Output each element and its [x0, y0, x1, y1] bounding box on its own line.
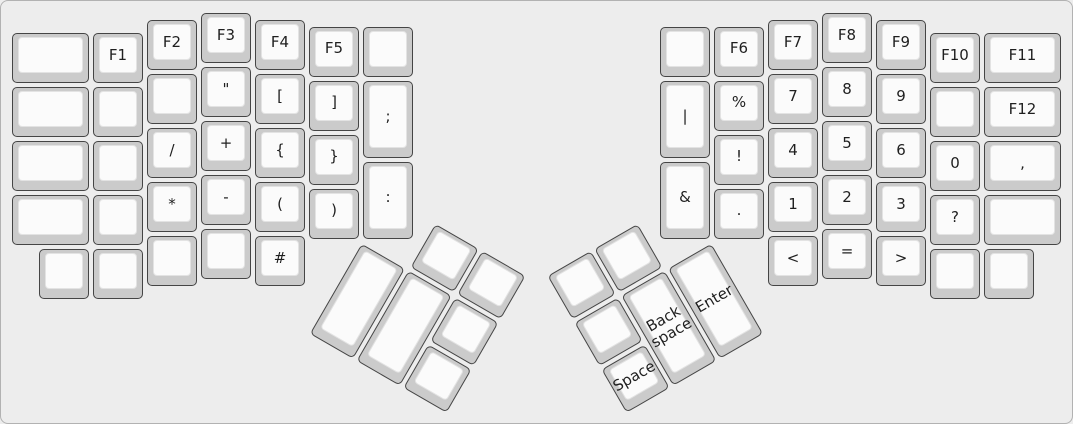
key-blank[interactable]	[930, 249, 980, 299]
key-label: (	[276, 196, 284, 213]
key-label: %	[731, 94, 747, 111]
key-label: #	[273, 250, 288, 267]
key-blank[interactable]	[984, 249, 1034, 299]
key-label: |	[681, 108, 688, 125]
key-label	[579, 282, 581, 283]
key-label: F12	[1008, 101, 1038, 118]
key-label: F2	[162, 34, 182, 51]
keytop-surface: 9	[882, 78, 920, 114]
key--[interactable]: -	[201, 175, 251, 225]
key-0[interactable]: 0	[930, 141, 980, 191]
key-label: [	[276, 88, 284, 105]
keytop-surface	[45, 253, 83, 289]
key-label: /	[168, 142, 175, 159]
key-label	[492, 282, 494, 283]
key-blank[interactable]	[93, 195, 143, 245]
key-;[interactable]: ;	[363, 81, 413, 158]
key-label: F10	[940, 47, 970, 64]
keytop-surface: ,	[990, 145, 1055, 181]
keytop-surface: :	[369, 166, 407, 229]
key-label: F4	[270, 34, 290, 51]
key-label: +	[219, 135, 234, 152]
key-+[interactable]: +	[201, 121, 251, 171]
keytop-surface: +	[207, 125, 245, 161]
key-label: F9	[891, 34, 911, 51]
keytop-surface: -	[207, 179, 245, 215]
keytop-surface: 5	[828, 125, 866, 161]
key-blank[interactable]	[984, 195, 1061, 245]
keytop-surface	[207, 233, 245, 269]
keytop-surface: }	[315, 139, 353, 175]
keytop-surface: |	[666, 85, 704, 148]
key-f1[interactable]: F1	[93, 33, 143, 83]
key-f12[interactable]: F12	[984, 87, 1061, 137]
key-label: :	[384, 189, 391, 206]
key-blank[interactable]	[39, 249, 89, 299]
keytop-surface	[99, 253, 137, 289]
keytop-surface: 3	[882, 186, 920, 222]
key-label: Space	[609, 356, 659, 394]
keytop-surface: F3	[207, 17, 245, 53]
key-label: 4	[787, 142, 799, 159]
keytop-surface	[990, 253, 1028, 289]
key-label: 2	[841, 189, 853, 206]
keytop-surface: [	[261, 78, 299, 114]
key-label: 1	[787, 196, 799, 213]
key-6[interactable]: 6	[876, 128, 926, 178]
key-label: *	[167, 196, 177, 213]
keytop-surface	[99, 91, 137, 127]
key-8[interactable]: 8	[822, 67, 872, 117]
key-f4[interactable]: F4	[255, 20, 305, 70]
key-}[interactable]: }	[309, 135, 359, 185]
key-label: ]	[330, 94, 338, 111]
key-label: <	[786, 250, 801, 267]
key-|[interactable]: |	[660, 81, 710, 158]
key-blank[interactable]	[12, 33, 89, 83]
keytop-surface: F10	[936, 37, 974, 73]
keytop-surface: {	[261, 132, 299, 168]
key-4[interactable]: 4	[768, 128, 818, 178]
key-label: 8	[841, 81, 853, 98]
key-f11[interactable]: F11	[984, 33, 1061, 83]
keytop-surface: >	[882, 240, 920, 276]
key-label	[438, 375, 440, 376]
key-label: !	[735, 148, 743, 165]
keytop-surface: F7	[774, 24, 812, 60]
key-blank[interactable]	[147, 74, 197, 124]
keytop-surface: 6	[882, 132, 920, 168]
key-blank[interactable]	[93, 249, 143, 299]
key-?[interactable]: ?	[930, 195, 980, 245]
key-f2[interactable]: F2	[147, 20, 197, 70]
keytop-surface	[153, 78, 191, 114]
keytop-surface: F5	[315, 31, 353, 67]
key-blank[interactable]	[12, 87, 89, 137]
key-#[interactable]: #	[255, 236, 305, 286]
key-label: 3	[895, 196, 907, 213]
keytop-surface: ?	[936, 199, 974, 235]
key-label	[626, 255, 628, 256]
keytop-surface: <	[774, 240, 812, 276]
key-blank[interactable]	[201, 229, 251, 279]
key-<[interactable]: <	[768, 236, 818, 286]
keytop-surface	[18, 91, 83, 127]
key-label: F7	[783, 34, 803, 51]
key-.[interactable]: .	[714, 189, 764, 239]
key->[interactable]: >	[876, 236, 926, 286]
key-label: }	[328, 148, 340, 165]
keytop-surface: !	[720, 139, 758, 175]
key-9[interactable]: 9	[876, 74, 926, 124]
keytop-surface: F1	[99, 37, 137, 73]
keytop-surface: ]	[315, 85, 353, 121]
key-f10[interactable]: F10	[930, 33, 980, 83]
keytop-surface	[18, 37, 83, 73]
key-f5[interactable]: F5	[309, 27, 359, 77]
keytop-surface: 7	[774, 78, 812, 114]
keytop-surface: /	[153, 132, 191, 168]
key-label: 9	[895, 88, 907, 105]
key-blank[interactable]	[12, 195, 89, 245]
key-blank[interactable]	[147, 236, 197, 286]
keytop-surface	[18, 145, 83, 181]
key-2[interactable]: 2	[822, 175, 872, 225]
key-label: ?	[950, 209, 960, 226]
key-label: 0	[949, 155, 961, 172]
key-blank[interactable]	[93, 87, 143, 137]
key-label	[358, 298, 360, 299]
key-,[interactable]: ,	[984, 141, 1061, 191]
key-label	[405, 325, 407, 326]
keytop-surface: 4	[774, 132, 812, 168]
key-blank[interactable]	[12, 141, 89, 191]
key-label	[445, 255, 447, 256]
key-label: Enter	[692, 280, 737, 315]
keytop-surface: =	[828, 233, 866, 269]
keytop-surface: F6	[720, 31, 758, 67]
keytop-surface	[666, 31, 704, 67]
key-7[interactable]: 7	[768, 74, 818, 124]
keytop-surface: .	[720, 193, 758, 229]
keytop-surface: (	[261, 186, 299, 222]
keytop-surface: F9	[882, 24, 920, 60]
keytop-surface	[936, 253, 974, 289]
key-5[interactable]: 5	[822, 121, 872, 171]
keytop-surface: 2	[828, 179, 866, 215]
key-f9[interactable]: F9	[876, 20, 926, 70]
keytop-surface: F11	[990, 37, 1055, 73]
key-%[interactable]: %	[714, 81, 764, 131]
key-![interactable]: !	[714, 135, 764, 185]
keytop-surface	[99, 199, 137, 235]
key-{[interactable]: {	[255, 128, 305, 178]
key-=[interactable]: =	[822, 229, 872, 279]
key-f6[interactable]: F6	[714, 27, 764, 77]
keytop-surface: F8	[828, 17, 866, 53]
key-label	[606, 328, 608, 329]
key-label: F11	[1008, 47, 1038, 64]
key-label: -	[222, 189, 229, 206]
key-label	[465, 328, 467, 329]
key-&[interactable]: &	[660, 162, 710, 239]
key-label: ;	[384, 108, 391, 125]
key-label: &	[678, 189, 692, 206]
keytop-surface: 0	[936, 145, 974, 181]
key-label: ,	[1019, 155, 1026, 172]
keytop-surface	[99, 145, 137, 181]
key-([interactable]: (	[255, 182, 305, 232]
keytop-surface	[990, 199, 1055, 235]
key-label: 5	[841, 135, 853, 152]
key-f7[interactable]: F7	[768, 20, 818, 70]
keytop-surface: &	[666, 166, 704, 229]
key-label: )	[330, 202, 338, 219]
key-label: F6	[729, 40, 749, 57]
key-"[interactable]: "	[201, 67, 251, 117]
keytop-surface: F12	[990, 91, 1055, 127]
keytop-surface: %	[720, 85, 758, 121]
key-label: 7	[787, 88, 799, 105]
keytop-surface: *	[153, 186, 191, 222]
key-*[interactable]: *	[147, 182, 197, 232]
key-blank[interactable]	[660, 27, 710, 77]
key-label: {	[274, 142, 286, 159]
key-][interactable]: ]	[309, 81, 359, 131]
key-[[interactable]: [	[255, 74, 305, 124]
keytop-surface: #	[261, 240, 299, 276]
key-)[interactable]: )	[309, 189, 359, 239]
key-label: .	[736, 202, 743, 219]
keytop-surface: "	[207, 71, 245, 107]
key-f3[interactable]: F3	[201, 13, 251, 63]
key-label: 6	[895, 142, 907, 159]
keytop-surface: ;	[369, 85, 407, 148]
key-/[interactable]: /	[147, 128, 197, 178]
key-label: F5	[324, 40, 344, 57]
key-label: "	[222, 81, 231, 98]
key-1[interactable]: 1	[768, 182, 818, 232]
key-label: >	[894, 250, 909, 267]
keytop-surface: )	[315, 193, 353, 229]
key-label: =	[840, 243, 855, 260]
keytop-surface	[18, 199, 83, 235]
keytop-surface: F4	[261, 24, 299, 60]
keytop-surface: 8	[828, 71, 866, 107]
keytop-surface	[369, 31, 407, 67]
key-label: F1	[108, 47, 128, 64]
key-label: F3	[216, 27, 236, 44]
keytop-surface	[153, 240, 191, 276]
keytop-surface: 1	[774, 186, 812, 222]
key-f8[interactable]: F8	[822, 13, 872, 63]
key-blank[interactable]	[930, 87, 980, 137]
keytop-surface: F2	[153, 24, 191, 60]
key-label: F8	[837, 27, 857, 44]
key-3[interactable]: 3	[876, 182, 926, 232]
key-blank[interactable]	[93, 141, 143, 191]
key-:[interactable]: :	[363, 162, 413, 239]
key-blank[interactable]	[363, 27, 413, 77]
keytop-surface	[936, 91, 974, 127]
